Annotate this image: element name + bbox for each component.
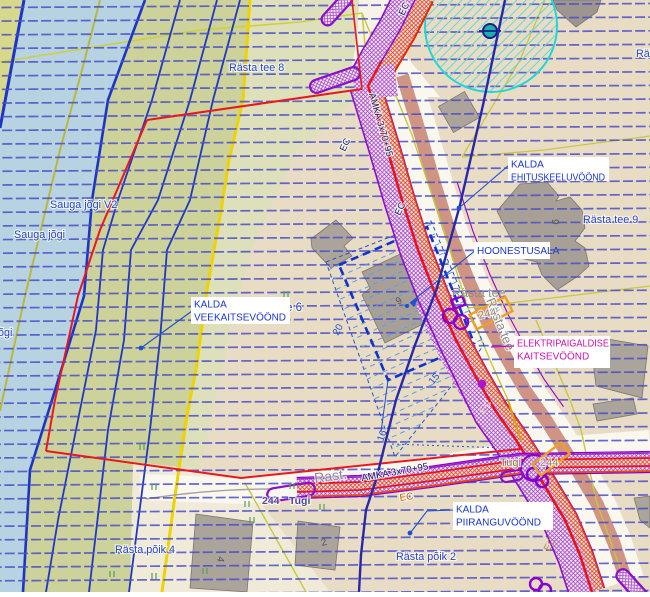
svg-text:KALDA: KALDA <box>194 300 227 311</box>
svg-text:Rästa põik 2: Rästa põik 2 <box>396 551 456 563</box>
svg-text:Rästa põik 4: Rästa põik 4 <box>115 544 175 556</box>
svg-text:KAITSEVÖÖND: KAITSEVÖÖND <box>517 351 589 363</box>
svg-text:Sauga jõgi V2: Sauga jõgi V2 <box>50 199 117 211</box>
svg-text:PIIRANGUVÖÖND: PIIRANGUVÖÖND <box>456 517 541 529</box>
svg-text:9: 9 <box>549 219 560 225</box>
svg-text:KALDA: KALDA <box>511 160 544 171</box>
svg-text:VEEKAITSEVÖÖND: VEEKAITSEVÖÖND <box>194 312 286 324</box>
svg-text:õgi: õgi <box>0 327 12 339</box>
svg-text:Tugi: Tugi <box>289 495 310 507</box>
svg-text:Rästa: Rästa <box>636 48 650 60</box>
svg-text:EC: EC <box>399 491 414 504</box>
svg-text:244: 244 <box>540 457 558 469</box>
svg-text:HOONESTUSALA: HOONESTUSALA <box>477 246 560 257</box>
svg-text:KALDA: KALDA <box>456 505 489 516</box>
svg-text:Rästa tee 8: Rästa tee 8 <box>229 62 284 74</box>
svg-text:Tugi: Tugi <box>500 457 521 469</box>
svg-text:EHITUSKEELUVÖÖND: EHITUSKEELUVÖÖND <box>511 172 605 184</box>
svg-text:244: 244 <box>262 495 280 507</box>
svg-text:Sauga jõgi: Sauga jõgi <box>14 229 65 241</box>
svg-text:ELEKTRIPAIGALDISE: ELEKTRIPAIGALDISE <box>517 339 609 350</box>
svg-text:Rästa tee 9: Rästa tee 9 <box>583 214 638 226</box>
